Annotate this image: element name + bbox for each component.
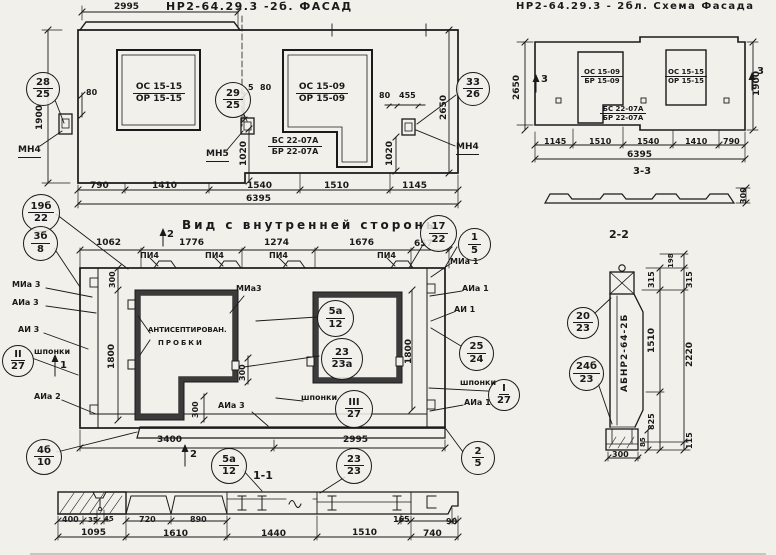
- interior-label-antiseptic-line1: АНТИСЕПТИРОВАН.: [148, 327, 227, 335]
- section-1-1-title: 1-1: [253, 470, 273, 482]
- facade-dim-80-left: 80: [86, 89, 97, 98]
- interior-linework: [32, 214, 488, 466]
- sec11-dim-90: 90: [446, 518, 457, 527]
- interior-label-mia1: МИа 1: [450, 258, 478, 267]
- facade-dim-790: 790: [90, 182, 109, 192]
- interior-marker-1-left: 1: [60, 360, 67, 371]
- facade-vdim-1900: 1900: [35, 105, 45, 130]
- sec22-dim-300: 300: [612, 451, 629, 460]
- interior-dim-1776: 1776: [179, 239, 204, 249]
- facade-dim-1540: 1540: [247, 182, 272, 192]
- interior-pi4-label-1: ПИ4: [140, 252, 159, 261]
- schema-sill-mark: БС 22-07А БР 22-07А: [600, 105, 646, 123]
- facade-window2-mark: ОС 15-09 ОР 15-09: [296, 82, 348, 105]
- sec11-dim-740: 740: [423, 530, 442, 540]
- interior-label-ai3: АИ 3: [18, 326, 39, 335]
- sec11-dim-890: 890: [190, 516, 207, 525]
- section-2-2-title: 2-2: [609, 229, 629, 241]
- sec22-dim-315-outer: 315: [685, 271, 694, 288]
- interior-vdim-300-bottom: 300: [191, 401, 200, 418]
- interior-label-antiseptic-line2: ПРОБКИ: [158, 340, 204, 348]
- interior-title: Вид с внутренней стороны: [182, 219, 440, 232]
- interior-pi4-label-2: ПИ4: [205, 252, 224, 261]
- interior-label-mia3-inner: МИа3: [236, 285, 262, 294]
- interior-label-shponki-right: шпонки: [460, 379, 496, 388]
- interior-dim-1062: 1062: [96, 239, 121, 249]
- schema-title: НР2-64.29.3 - 2бл. Схема Фасада: [516, 1, 755, 12]
- facade-anchor-mn4-left: МН4: [18, 146, 41, 158]
- interior-vdim-300-step: 300: [238, 364, 247, 381]
- schema-window1-mark: ОС 15-09 БР 15-09: [581, 68, 623, 86]
- interior-label-mia3: МИа 3: [12, 281, 40, 290]
- facade-dim-1410: 1410: [152, 182, 177, 192]
- interior-label-ai1: АИ 1: [454, 306, 475, 315]
- callout-5a-12: 5а 12: [317, 300, 354, 337]
- facade-anchor-mn5: МН5: [206, 150, 229, 162]
- facade-window1-mark: ОС 15-15 ОР 15-15: [133, 82, 185, 105]
- interior-pi4-label-4: ПИ4: [377, 252, 396, 261]
- facade-linework: [40, 6, 461, 208]
- interior-dim-1274: 1274: [264, 239, 289, 249]
- sec22-dim-85: 85: [639, 437, 647, 447]
- sec22-dim-198: 198: [667, 253, 675, 268]
- sec22-dim-825: 825: [647, 413, 656, 430]
- schema-section-marker-3-left: 3: [541, 74, 548, 85]
- interior-vdim-1800-left: 1800: [107, 344, 117, 369]
- interior-label-shponki-left: шпонки: [34, 348, 70, 357]
- sec11-dim-1610: 1610: [163, 530, 188, 540]
- callout-II-27: II 27: [2, 345, 34, 377]
- facade-sill-mark: БС 22-07А БР 22-07А: [268, 136, 322, 156]
- facade-title: НР2-64.29.3 -2б. ФАСАД: [166, 1, 353, 13]
- interior-label-aia1: АИа 1: [462, 285, 489, 294]
- callout-28-25: 28 25: [26, 72, 60, 106]
- interior-pi4-label-3: ПИ4: [269, 252, 288, 261]
- facade-dim-1510: 1510: [324, 182, 349, 192]
- schema-vdim-2650: 2650: [512, 75, 522, 100]
- callout-III-27: III 27: [335, 390, 373, 428]
- callout-29-25: 29 25: [215, 82, 251, 118]
- callout-33-26: 33 26: [456, 72, 490, 106]
- schema-vdim-1900: 1900: [752, 71, 762, 96]
- callout-5a-12-section: 5а 12: [211, 448, 247, 484]
- interior-dim-1676: 1676: [349, 239, 374, 249]
- callout-23-23-section: 23 23: [336, 448, 372, 484]
- facade-vdim-1020-left: 1020: [239, 141, 249, 166]
- callout-4b-10: 4б 10: [26, 439, 62, 475]
- schema-dim-1510: 1510: [589, 138, 611, 147]
- facade-dim-455: 455: [399, 92, 416, 101]
- sec11-dim-45: 45: [104, 516, 114, 524]
- schema-dim-1540: 1540: [637, 138, 659, 147]
- section-3-3-title: 3-3: [633, 166, 651, 177]
- callout-17-22: 17 22: [420, 215, 457, 252]
- drawing-sheet: НР2-64.29.3 -2б. ФАСАД 2995 80 ОС 15-15 …: [0, 0, 776, 555]
- interior-marker-2-bottom: 2: [190, 449, 197, 460]
- sec11-dim-1510: 1510: [352, 529, 377, 539]
- sec11-dim-165: 165: [393, 516, 410, 525]
- facade-vdim-2650: 2650: [439, 95, 449, 120]
- schema-dim-790: 790: [723, 138, 740, 147]
- schema-dim-1145: 1145: [544, 138, 566, 147]
- facade-dim-80-right: 80: [379, 92, 390, 101]
- facade-dim-1145: 1145: [402, 182, 427, 192]
- callout-25-24: 25 24: [459, 336, 494, 371]
- sec11-dim-1440: 1440: [261, 530, 286, 540]
- facade-dim-5: 5: [248, 84, 254, 93]
- sec11-dim-720: 720: [139, 516, 156, 525]
- facade-dim-2995: 2995: [114, 3, 139, 13]
- sec11-dim-35: 35: [88, 517, 98, 525]
- facade-vdim-1020-right: 1020: [385, 141, 395, 166]
- schema-dim-1410: 1410: [685, 138, 707, 147]
- interior-label-aia2: АИа 2: [34, 393, 61, 402]
- interior-label-aia1-lower: АИа 1: [464, 399, 491, 408]
- sec22-body-mark: АБНР2-64-2Б: [620, 314, 630, 392]
- sec11-dim-400: 400: [62, 516, 79, 525]
- callout-2-5: 2 5: [461, 441, 495, 475]
- callout-20-23: 20 23: [567, 307, 599, 339]
- section-3-3-dim-300: 300: [739, 187, 748, 204]
- facade-anchor-mn4-right: МН4: [456, 143, 479, 155]
- callout-23-23a: 23 23а: [321, 338, 363, 380]
- sec11-dim-1095: 1095: [81, 529, 106, 539]
- callout-24b-23: 24б 23: [569, 356, 604, 391]
- sec22-dim-1510: 1510: [647, 328, 657, 353]
- interior-dim-3400: 3400: [157, 436, 182, 446]
- interior-label-aia3: АИа 3: [12, 299, 39, 308]
- sec22-dim-315-inner: 315: [647, 271, 656, 288]
- facade-dim-total-6395: 6395: [246, 195, 271, 205]
- interior-dim-2995: 2995: [343, 436, 368, 446]
- interior-marker-2-top: 2: [167, 229, 174, 240]
- interior-label-aia3-inner: АИа 3: [218, 402, 245, 411]
- schema-window2-mark: ОС 15-15 ОР 15-15: [665, 68, 707, 86]
- sec22-dim-2220: 2220: [685, 342, 695, 367]
- section-2-2-linework: [594, 251, 690, 461]
- sec22-dim-115: 115: [685, 432, 694, 449]
- interior-vdim-300-topleft: 300: [108, 271, 117, 288]
- interior-label-shponki-inner: шпонки: [301, 394, 337, 403]
- schema-dim-total-6395: 6395: [627, 151, 652, 161]
- callout-3b-8: 3б 8: [23, 226, 58, 261]
- facade-dim-80-mid: 80: [260, 84, 271, 93]
- interior-vdim-1800-right: 1800: [404, 339, 414, 364]
